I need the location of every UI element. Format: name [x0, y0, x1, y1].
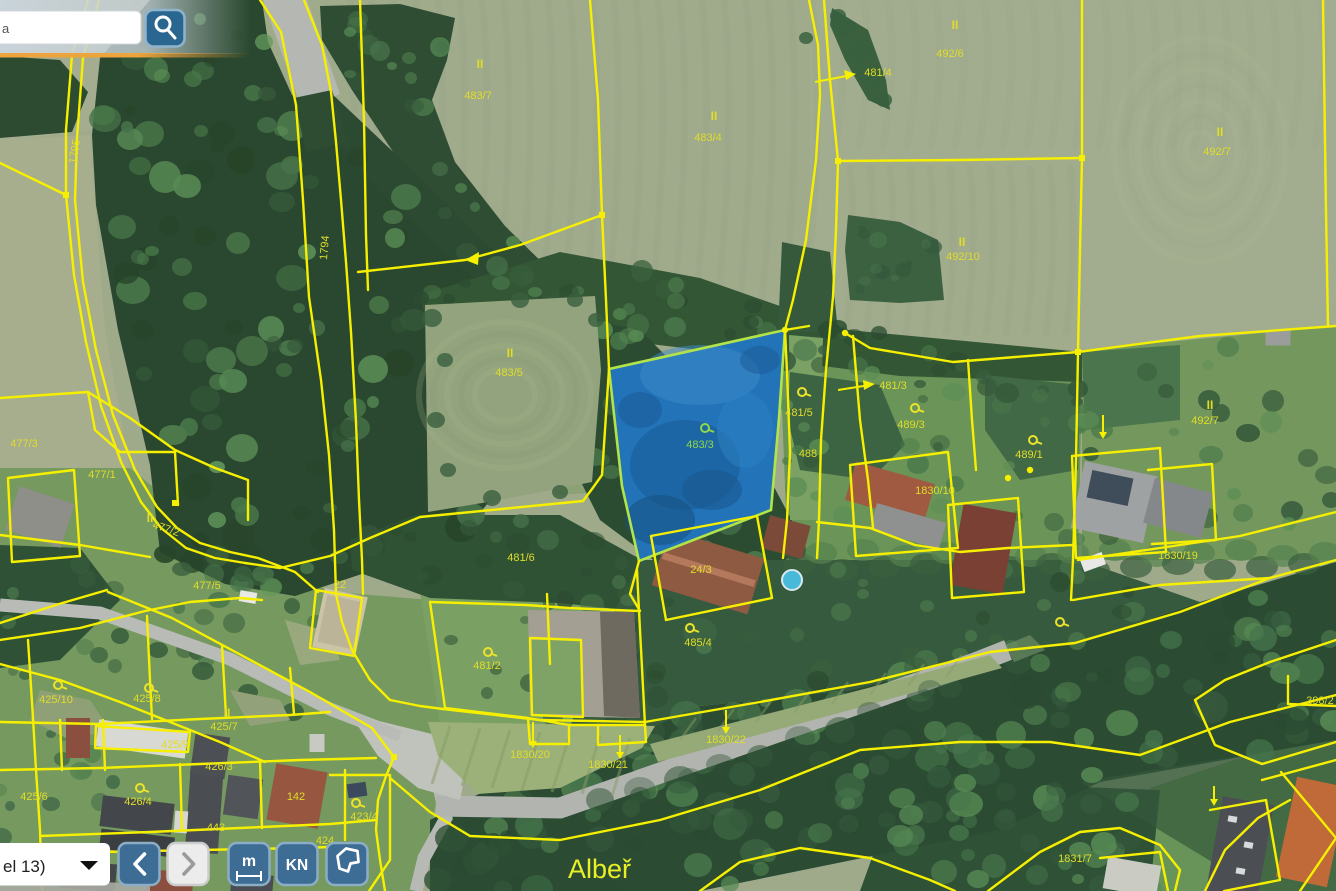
svg-text:481/2: 481/2 — [473, 660, 501, 672]
svg-text:492/6: 492/6 — [936, 48, 964, 60]
svg-text:483/3: 483/3 — [686, 439, 714, 451]
svg-text:425/7: 425/7 — [210, 721, 238, 733]
svg-text:481/6: 481/6 — [507, 552, 535, 564]
svg-text:443: 443 — [207, 822, 225, 834]
svg-text:1831/7: 1831/7 — [1058, 853, 1092, 865]
svg-text:489/3: 489/3 — [897, 419, 925, 431]
svg-text:477/1: 477/1 — [88, 469, 116, 481]
svg-text:II: II — [1217, 125, 1224, 139]
svg-text:483/7: 483/7 — [464, 90, 492, 102]
svg-text:481/5: 481/5 — [785, 407, 813, 419]
svg-text:1830/10: 1830/10 — [915, 485, 955, 497]
svg-text:398/2: 398/2 — [1306, 695, 1334, 707]
svg-text:492/7: 492/7 — [1203, 146, 1231, 158]
svg-text:423/4: 423/4 — [350, 811, 378, 823]
svg-text:24/3: 24/3 — [690, 564, 711, 576]
svg-text:II: II — [952, 18, 959, 32]
svg-text:483/4: 483/4 — [694, 132, 722, 144]
svg-text:425/9: 425/9 — [161, 739, 189, 751]
svg-text:a: a — [2, 21, 10, 36]
svg-text:481/3: 481/3 — [879, 380, 907, 392]
svg-text:II: II — [477, 57, 484, 71]
svg-text:485/4: 485/4 — [684, 637, 712, 649]
svg-text:488: 488 — [799, 448, 817, 460]
svg-text:481/4: 481/4 — [864, 67, 892, 79]
svg-text:426/3: 426/3 — [205, 761, 233, 773]
svg-text:1830/22: 1830/22 — [706, 734, 746, 746]
svg-text:22: 22 — [334, 579, 346, 591]
svg-text:KN: KN — [286, 857, 308, 874]
svg-text:m: m — [242, 853, 256, 870]
svg-text:II: II — [147, 511, 154, 525]
svg-text:425/10: 425/10 — [39, 694, 73, 706]
svg-text:1830/19: 1830/19 — [1158, 550, 1198, 562]
svg-text:Albeř: Albeř — [568, 854, 632, 884]
svg-text:492/7: 492/7 — [1191, 415, 1219, 427]
svg-text:1830/20: 1830/20 — [510, 749, 550, 761]
svg-text:1794: 1794 — [318, 235, 332, 260]
svg-text:425/6: 425/6 — [20, 791, 48, 803]
svg-text:II: II — [959, 235, 966, 249]
svg-text:426/4: 426/4 — [124, 796, 152, 808]
svg-text:477/3: 477/3 — [10, 438, 38, 450]
svg-text:483/5: 483/5 — [495, 367, 523, 379]
svg-text:492/10: 492/10 — [946, 251, 980, 263]
svg-text:142: 142 — [287, 791, 305, 803]
svg-text:el 13): el 13) — [3, 857, 46, 876]
svg-text:489/1: 489/1 — [1015, 449, 1043, 461]
svg-text:II: II — [1207, 398, 1214, 412]
svg-text:II: II — [711, 109, 718, 123]
svg-text:425/8: 425/8 — [133, 693, 161, 705]
svg-text:1830/21: 1830/21 — [588, 759, 628, 771]
svg-text:II: II — [224, 706, 231, 720]
svg-text:II: II — [507, 346, 514, 360]
svg-text:477/5: 477/5 — [193, 580, 221, 592]
